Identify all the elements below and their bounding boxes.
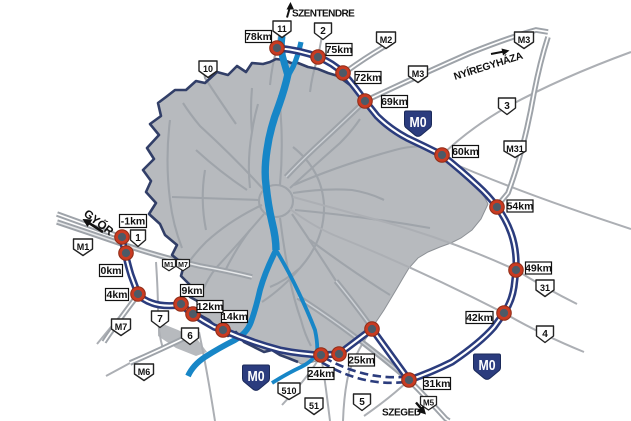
svg-text:12km: 12km [197,301,224,313]
svg-text:7: 7 [157,314,163,325]
svg-text:49km: 49km [525,263,552,275]
svg-text:M5: M5 [423,398,435,407]
svg-text:75km: 75km [326,44,353,56]
svg-text:6: 6 [187,331,193,342]
svg-text:51: 51 [309,401,319,411]
svg-text:M7: M7 [178,262,188,269]
svg-text:60km: 60km [452,146,479,158]
svg-text:42km: 42km [466,312,493,324]
svg-text:M7: M7 [115,322,128,332]
svg-text:4km: 4km [106,289,127,301]
svg-text:5: 5 [359,397,365,408]
svg-text:M0: M0 [409,114,426,130]
svg-text:M6: M6 [138,367,151,377]
svg-text:510: 510 [281,386,296,396]
svg-text:M31: M31 [506,144,524,154]
svg-text:69km: 69km [381,96,408,108]
svg-text:25km: 25km [348,355,375,367]
svg-text:1: 1 [135,233,141,244]
svg-text:SZEGED: SZEGED [382,408,421,419]
svg-text:72km: 72km [355,72,382,84]
svg-text:4: 4 [542,329,548,340]
svg-text:M3: M3 [412,69,425,79]
svg-text:78km: 78km [245,31,272,43]
svg-text:31: 31 [540,283,550,293]
svg-text:24km: 24km [308,368,335,380]
svg-text:-1km: -1km [121,216,146,228]
svg-text:M2: M2 [380,35,393,45]
svg-text:M0: M0 [247,368,264,384]
svg-text:14km: 14km [221,311,248,323]
svg-text:SZENTENDRE: SZENTENDRE [292,9,355,20]
svg-text:0km: 0km [100,265,121,277]
svg-text:9km: 9km [181,285,202,297]
svg-text:2: 2 [320,26,326,37]
svg-text:M1: M1 [77,242,90,252]
svg-text:11: 11 [277,24,287,34]
svg-text:M0: M0 [478,357,495,373]
svg-text:54km: 54km [507,201,534,213]
svg-text:3: 3 [504,101,510,112]
svg-text:M1: M1 [164,262,174,269]
svg-text:10: 10 [203,64,213,74]
svg-text:M3: M3 [518,35,531,45]
svg-text:31km: 31km [424,378,451,390]
